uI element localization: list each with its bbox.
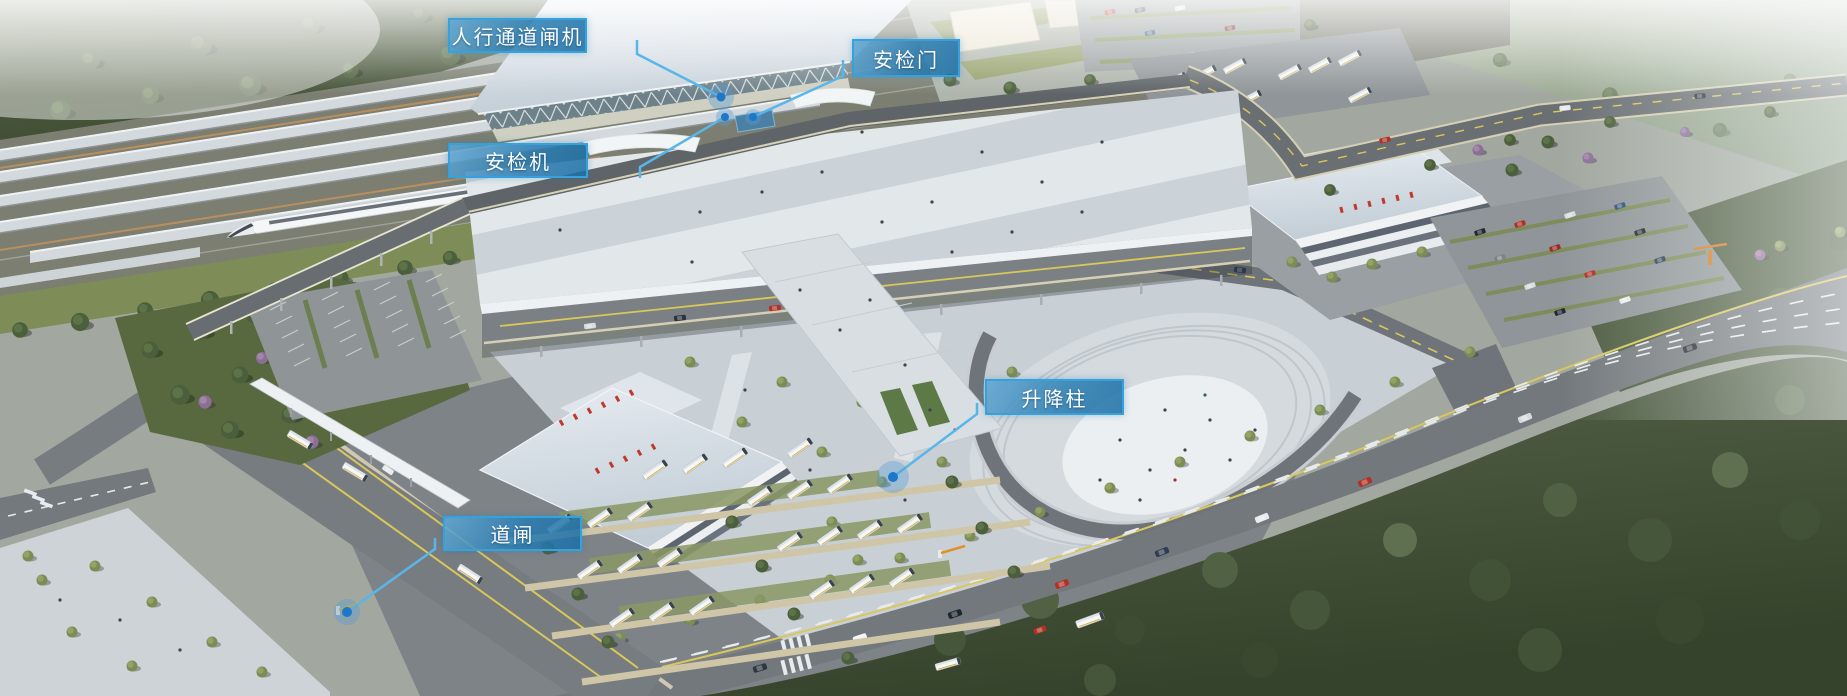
page-root: 人行通道闸机 安检门 安检机 升降柱 道闸 bbox=[0, 0, 1847, 696]
callout-label-pedestrian-channel-gate[interactable]: 人行通道闸机 bbox=[448, 18, 587, 53]
callout-label-rising-bollard[interactable]: 升降柱 bbox=[985, 379, 1124, 415]
callout-label-road-barrier[interactable]: 道闸 bbox=[443, 516, 582, 551]
aerial-station-rendering bbox=[0, 0, 1847, 696]
callout-label-security-scanner[interactable]: 安检机 bbox=[448, 143, 588, 178]
callout-label-security-check-door[interactable]: 安检门 bbox=[852, 39, 960, 77]
haze-right bbox=[1560, 0, 1847, 420]
